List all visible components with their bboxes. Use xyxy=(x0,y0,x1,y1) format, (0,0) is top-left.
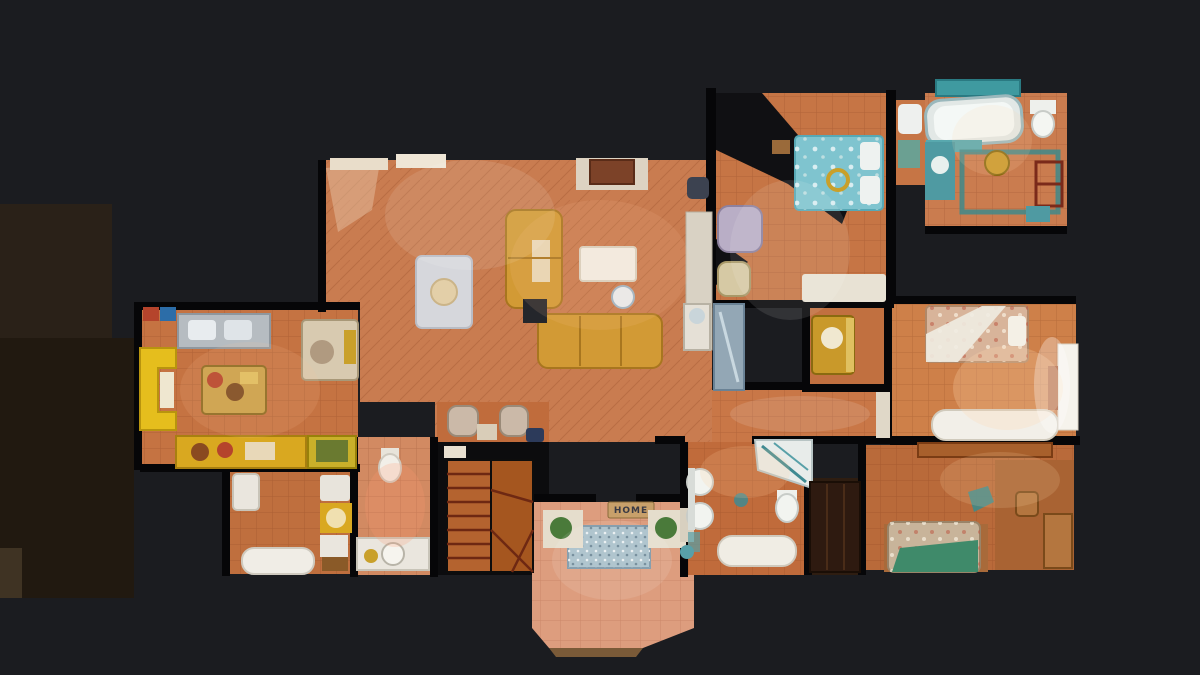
ensuite-teal-shelf xyxy=(936,80,1020,96)
laundry-wood-cab xyxy=(322,557,348,571)
wall xyxy=(318,160,326,312)
dark-wardrobe xyxy=(810,482,860,572)
light-wash xyxy=(552,520,672,600)
lower-counter-pot xyxy=(217,442,233,458)
bedside-table xyxy=(772,140,790,154)
laundry-tub xyxy=(242,548,314,574)
wall xyxy=(532,494,596,502)
kitchen-desk-gold xyxy=(344,330,356,364)
entrance-door-strip xyxy=(549,648,643,657)
laundry-counter xyxy=(320,535,348,557)
lower-counter-pot xyxy=(191,443,209,461)
wc-gold-item xyxy=(364,549,378,563)
laundry-yellow-bowl xyxy=(326,508,346,528)
layer-labels: HOME xyxy=(614,506,648,516)
gold-vanity-sink xyxy=(821,327,843,349)
cabinet-inner xyxy=(316,440,348,462)
kitchen-sink xyxy=(188,320,216,340)
light-wash xyxy=(730,180,850,320)
light-wash xyxy=(940,452,1060,508)
kitchen-sink xyxy=(224,320,252,340)
vanity-teal-mat xyxy=(898,140,920,168)
dollhouse-canvas[interactable]: HOME xyxy=(0,0,1200,675)
light-wash xyxy=(1034,337,1070,433)
garage-light-patch xyxy=(0,548,22,598)
bed-floral-pillow xyxy=(1008,316,1026,346)
wall xyxy=(925,226,1067,234)
stair-hall-navy-item xyxy=(526,428,544,442)
wall xyxy=(802,384,892,392)
light-wash xyxy=(730,396,870,432)
gold-vanity-side xyxy=(846,318,854,372)
stair-hall-table xyxy=(477,424,497,440)
nook-table xyxy=(160,372,174,408)
ensuite-teal-mat xyxy=(1026,206,1050,222)
teal-accessory xyxy=(688,532,700,552)
washstand-mirror xyxy=(689,308,705,324)
light-wash xyxy=(180,342,320,438)
bedroom4-wardrobe xyxy=(1044,514,1072,568)
bathroom2-tub xyxy=(718,536,796,566)
sink-backsplash xyxy=(688,468,695,530)
ensuite-toilet-bowl xyxy=(1032,111,1054,137)
wall xyxy=(744,382,804,390)
stair-flight-lower xyxy=(491,460,533,572)
bed-blue-pillow xyxy=(860,142,880,170)
ensuite-counter-sink xyxy=(931,156,949,174)
bed-blue-pillow xyxy=(860,176,880,204)
wall xyxy=(890,296,1076,304)
laundry-sink xyxy=(320,475,350,501)
office-chair xyxy=(500,406,528,436)
desk-chair-dark xyxy=(687,177,709,199)
wall xyxy=(636,494,694,502)
wall xyxy=(222,472,230,576)
kitchen-mosaic xyxy=(160,307,176,321)
light-wash xyxy=(952,105,1032,175)
kitchen-mosaic xyxy=(143,307,159,321)
neighbor-structure xyxy=(0,204,112,338)
window-sill xyxy=(330,158,388,170)
kitchen-desk-chair xyxy=(310,340,334,364)
light-wash xyxy=(510,200,690,330)
light-wash xyxy=(365,463,425,547)
vanity-sink-white xyxy=(898,104,922,134)
bathroom2-toilet-bowl xyxy=(776,494,798,522)
dollhouse-viewer[interactable]: HOME xyxy=(0,0,1200,675)
office-chair xyxy=(448,406,478,436)
fruit-plate xyxy=(431,279,457,305)
corridor-end-door xyxy=(876,392,890,438)
doormat-text: HOME xyxy=(614,506,648,516)
lower-counter-tray xyxy=(245,442,275,460)
light-wash xyxy=(700,446,790,498)
laundry-basin xyxy=(233,474,259,510)
stair-landing-strip xyxy=(444,446,466,458)
wall xyxy=(430,437,438,577)
wall xyxy=(886,90,896,302)
fireplace-brick xyxy=(590,160,634,184)
